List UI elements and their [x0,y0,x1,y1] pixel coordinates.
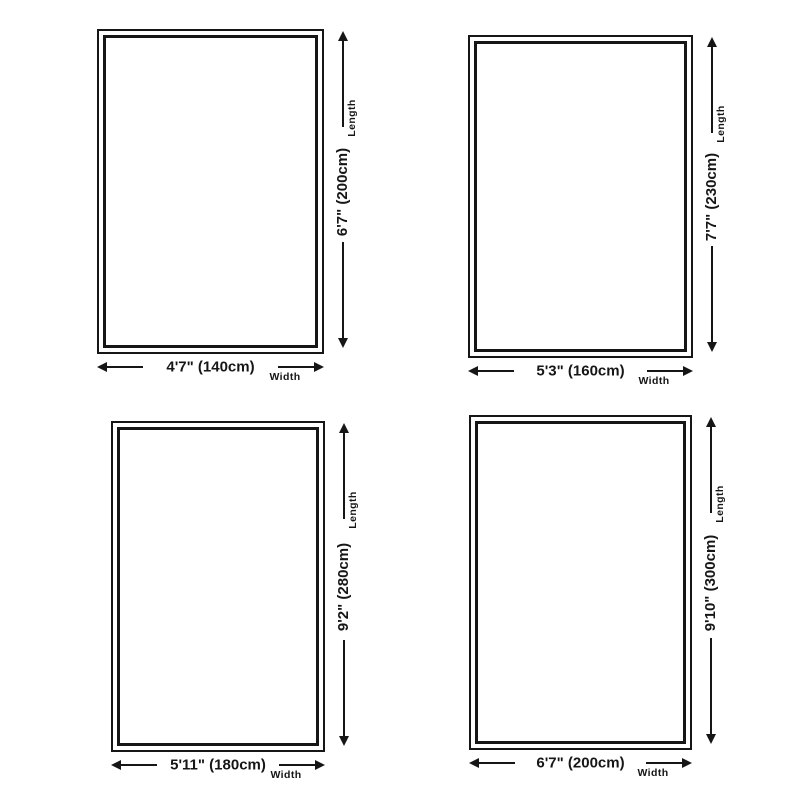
length-dimension-text: 6'7" (200cm) [333,82,353,302]
arrow-line [120,764,157,766]
arrow-right-icon [315,760,325,770]
rug-inner-border [117,427,319,746]
width-dimension-arrow: 6'7" (200cm) Width [469,757,692,769]
size-panel-160x230: Length 7'7" (230cm) 5'3" (160cm) Width [400,0,800,400]
arrow-down-icon [339,736,349,746]
arrow-left-segment [468,365,514,377]
arrow-line [279,764,316,766]
rug-inner-border [475,421,686,744]
width-dimension-text: 4'7" (140cm) [166,359,254,376]
width-dimension-arrow: 4'7" (140cm) Width [97,361,324,373]
size-chart: Length 6'7" (200cm) 4'7" (140cm) Width [0,0,800,800]
arrow-line [278,366,315,368]
arrow-line [106,366,143,368]
arrow-left-segment [97,361,143,373]
arrow-right-icon [682,758,692,768]
width-dimension-text: 5'3" (160cm) [536,363,624,380]
size-panel-180x280: Length 9'2" (280cm) 5'11" (180cm) Width [0,400,400,800]
width-axis-label: Width [637,767,668,779]
arrow-left-segment [111,759,157,771]
rug-outline [469,415,692,750]
rug-outline [468,35,693,358]
arrow-line [647,370,684,372]
rug-outline [111,421,325,752]
rug-inner-border [103,35,318,348]
arrow-line [477,370,514,372]
width-axis-label: Width [638,375,669,387]
arrow-down-icon [706,734,716,744]
width-dimension-arrow: 5'3" (160cm) Width [468,365,693,377]
size-panel-200x300: Length 9'10" (300cm) 6'7" (200cm) Width [400,400,800,800]
width-dimension-text: 5'11" (180cm) [170,757,266,774]
width-axis-label: Width [269,371,300,383]
length-dimension-text: 9'2" (280cm) [334,477,354,697]
arrow-left-segment [469,757,515,769]
arrow-right-icon [314,362,324,372]
arrow-right-icon [683,366,693,376]
width-axis-label: Width [270,769,301,781]
rug-inner-border [474,41,687,352]
length-dimension-text: 7'7" (230cm) [702,87,722,307]
size-panel-140x200: Length 6'7" (200cm) 4'7" (140cm) Width [0,0,400,400]
width-dimension-arrow: 5'11" (180cm) Width [111,759,325,771]
width-dimension-text: 6'7" (200cm) [536,755,624,772]
length-dimension-text: 9'10" (300cm) [701,473,721,693]
arrow-down-icon [338,338,348,348]
rug-outline [97,29,324,354]
arrow-line [646,762,683,764]
arrow-down-icon [707,342,717,352]
arrow-line [478,762,515,764]
